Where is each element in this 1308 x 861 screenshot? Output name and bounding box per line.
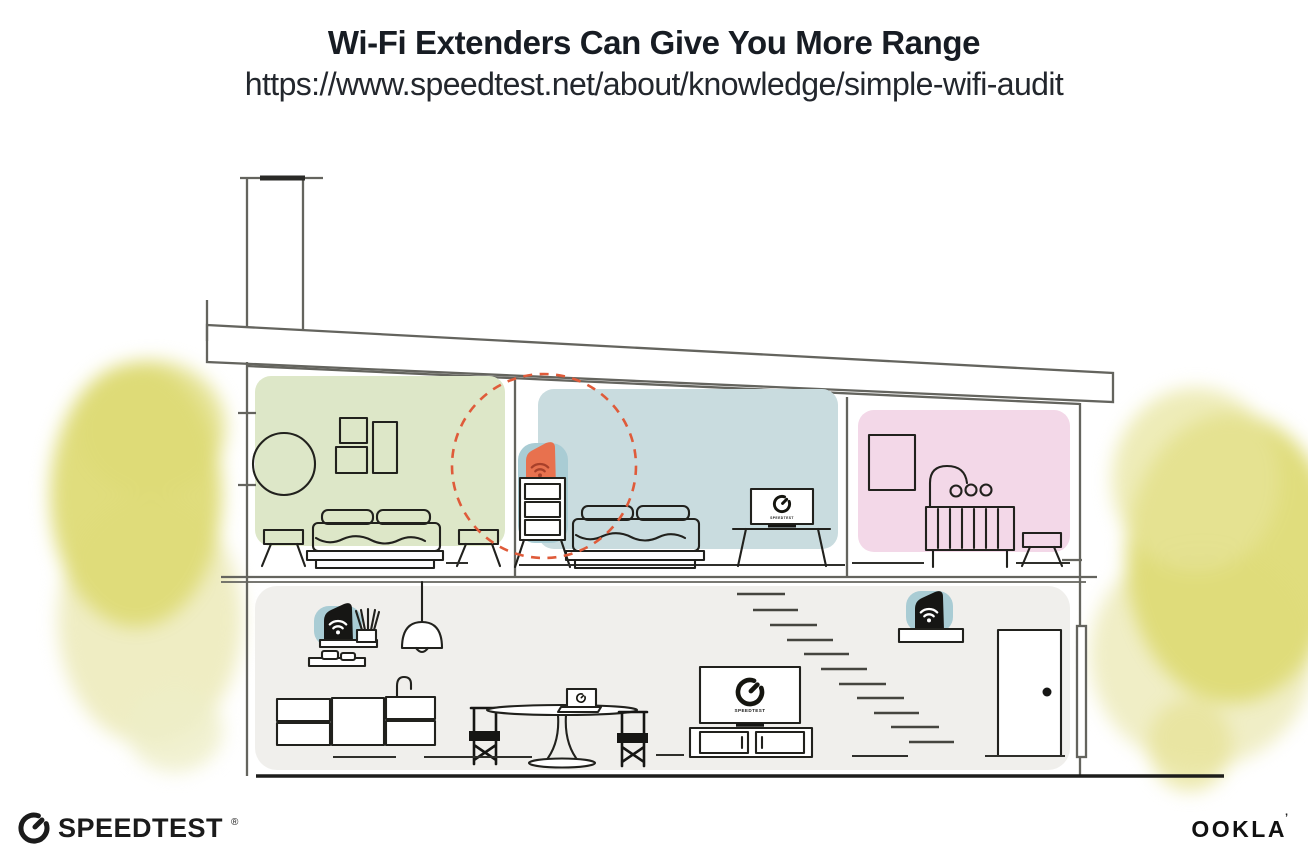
chimney [240, 178, 323, 330]
tv-screen-label: SPEEDTEST [735, 708, 766, 713]
bedroom-green-bg [255, 376, 505, 546]
speedtest-logo: SPEEDTEST® [18, 812, 238, 844]
speedtest-logo-text: SPEEDTEST [58, 813, 223, 844]
speedtest-trademark: ® [231, 817, 238, 828]
cup [322, 651, 338, 659]
ookla-trademark: ’ [1285, 812, 1288, 824]
door-knob [1043, 688, 1052, 697]
ookla-logo-text: OOKLA [1191, 816, 1287, 842]
nursery-pink-bg [858, 410, 1070, 552]
foliage-left [50, 360, 242, 772]
tv-console [690, 728, 812, 757]
source-url: https://www.speedtest.net/about/knowledg… [0, 66, 1308, 103]
cup [341, 653, 355, 660]
front-door [998, 630, 1061, 756]
foliage-right [1090, 388, 1308, 791]
header: Wi-Fi Extenders Can Give You More Range … [0, 0, 1308, 103]
tv: SPEEDTEST [700, 667, 800, 725]
tv-screen-label: SPEEDTEST [770, 516, 794, 520]
infographic-page: Wi-Fi Extenders Can Give You More Range … [0, 0, 1308, 861]
speedtest-gauge-icon [18, 812, 50, 844]
footer: SPEEDTEST® OOKLA’ [0, 806, 1308, 861]
page-title: Wi-Fi Extenders Can Give You More Range [0, 24, 1308, 62]
dresser [515, 478, 570, 567]
house-cutaway-illustration: SPEEDTEST [0, 0, 1308, 861]
ookla-logo: OOKLA’ [1191, 816, 1290, 843]
downspout [1077, 626, 1086, 757]
